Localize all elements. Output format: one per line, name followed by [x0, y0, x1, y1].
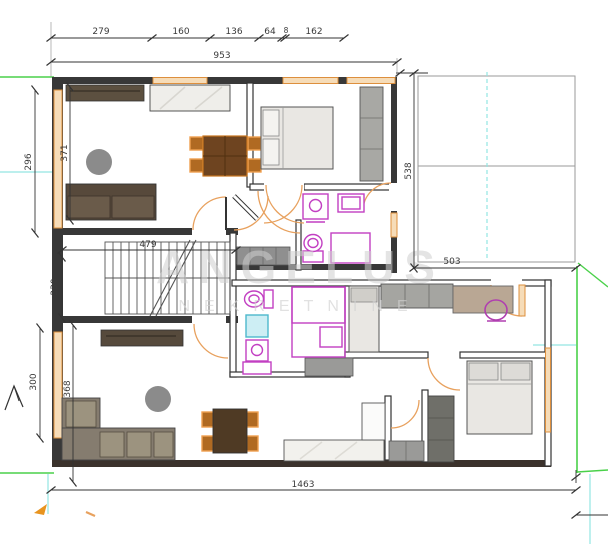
chair — [246, 436, 258, 451]
floor-plan-canvas: ANGELUS NEKRETNINE — [0, 0, 608, 544]
entrance-door-leaf — [234, 196, 257, 219]
double-bed-lower — [467, 361, 532, 434]
watermark-title: ANGELUS — [156, 241, 444, 293]
door-arc — [193, 197, 226, 230]
kitchen-counter — [284, 440, 384, 461]
window — [153, 78, 207, 84]
boundary-green-line — [578, 263, 608, 287]
single-bed — [349, 286, 379, 352]
desk — [453, 286, 513, 313]
floor-plan: ANGELUS NEKRETNINE — [0, 0, 608, 544]
dim-label: 160 — [172, 27, 189, 37]
dim-label: 136 — [225, 27, 242, 37]
watermark-subtitle: NEKRETNINE — [178, 298, 421, 315]
dim-label: 538 — [404, 162, 414, 179]
wall-stairhall-bottom — [52, 316, 192, 323]
chair — [190, 137, 203, 150]
dining-table-lower — [202, 409, 258, 453]
pillow — [469, 363, 498, 380]
door-opening — [192, 315, 226, 324]
door-opening — [192, 227, 226, 236]
pillow — [501, 363, 530, 380]
dim-label: 8 — [284, 26, 289, 35]
shower-icon — [246, 315, 268, 337]
terrain-arrow-icon — [14, 386, 19, 401]
dim-label: 296 — [24, 153, 34, 170]
window — [347, 78, 395, 84]
terrain-arrow-icon — [5, 386, 23, 410]
pillow — [263, 110, 279, 136]
round-table — [145, 386, 171, 412]
chair — [248, 137, 261, 150]
cushion — [154, 432, 173, 457]
terrace — [418, 72, 575, 262]
wall-kidsroom-bottom — [345, 352, 428, 358]
boundary-green-line — [577, 470, 608, 472]
tv-board — [101, 330, 183, 346]
window — [54, 332, 62, 438]
dim-label: 300 — [29, 373, 39, 390]
dim-label: 279 — [92, 27, 109, 37]
orange-mark-icon — [34, 504, 47, 515]
chair — [248, 159, 261, 172]
table — [213, 409, 247, 453]
chair — [202, 436, 214, 451]
dim-label: 230 — [50, 278, 60, 295]
door-arc — [391, 400, 419, 428]
dim-label: 368 — [63, 380, 73, 397]
cushion — [127, 432, 151, 457]
door-leaf — [519, 285, 525, 316]
washing-machine-icon — [303, 194, 328, 222]
pillow — [263, 139, 279, 165]
sofa — [66, 184, 156, 220]
dim-label: 371 — [60, 144, 70, 161]
dim-label: 162 — [305, 27, 322, 37]
chair — [202, 412, 214, 427]
watermark: ANGELUS NEKRETNINE — [156, 241, 444, 315]
cushion — [100, 432, 124, 457]
low-cabinet — [305, 358, 353, 376]
wall-top — [52, 77, 397, 84]
wardrobe-bedroom3 — [428, 396, 454, 462]
dim-label: 503 — [443, 257, 460, 267]
tall-cabinet — [362, 403, 385, 440]
dim-label: 479 — [139, 240, 156, 250]
double-bed-upper — [261, 107, 333, 169]
window — [283, 78, 338, 84]
dim-label: 953 — [213, 51, 230, 61]
chair — [190, 159, 203, 172]
sideboard — [66, 85, 144, 101]
orange-mark-icon — [86, 512, 95, 516]
door-opening — [389, 183, 398, 211]
wardrobe-upper-right — [360, 87, 383, 181]
window — [391, 213, 397, 237]
gray-cabinet — [389, 441, 424, 461]
wall-bedroom3-top — [460, 352, 548, 358]
sink-icon — [338, 194, 364, 212]
washing-machine-icon — [246, 340, 268, 361]
round-table — [86, 149, 112, 175]
wall-bathroomA-top — [304, 184, 397, 190]
door-opening — [264, 183, 304, 191]
cushion — [66, 401, 96, 427]
dim-label: 64 — [264, 27, 276, 37]
door-arc — [428, 358, 460, 390]
chair — [246, 412, 258, 427]
dim-label: 1463 — [292, 480, 315, 490]
door-arc — [194, 324, 228, 358]
window — [546, 348, 551, 432]
sink-counter — [243, 362, 271, 374]
wall-livingA-bottom — [52, 228, 192, 235]
terrace-outline — [418, 76, 575, 262]
